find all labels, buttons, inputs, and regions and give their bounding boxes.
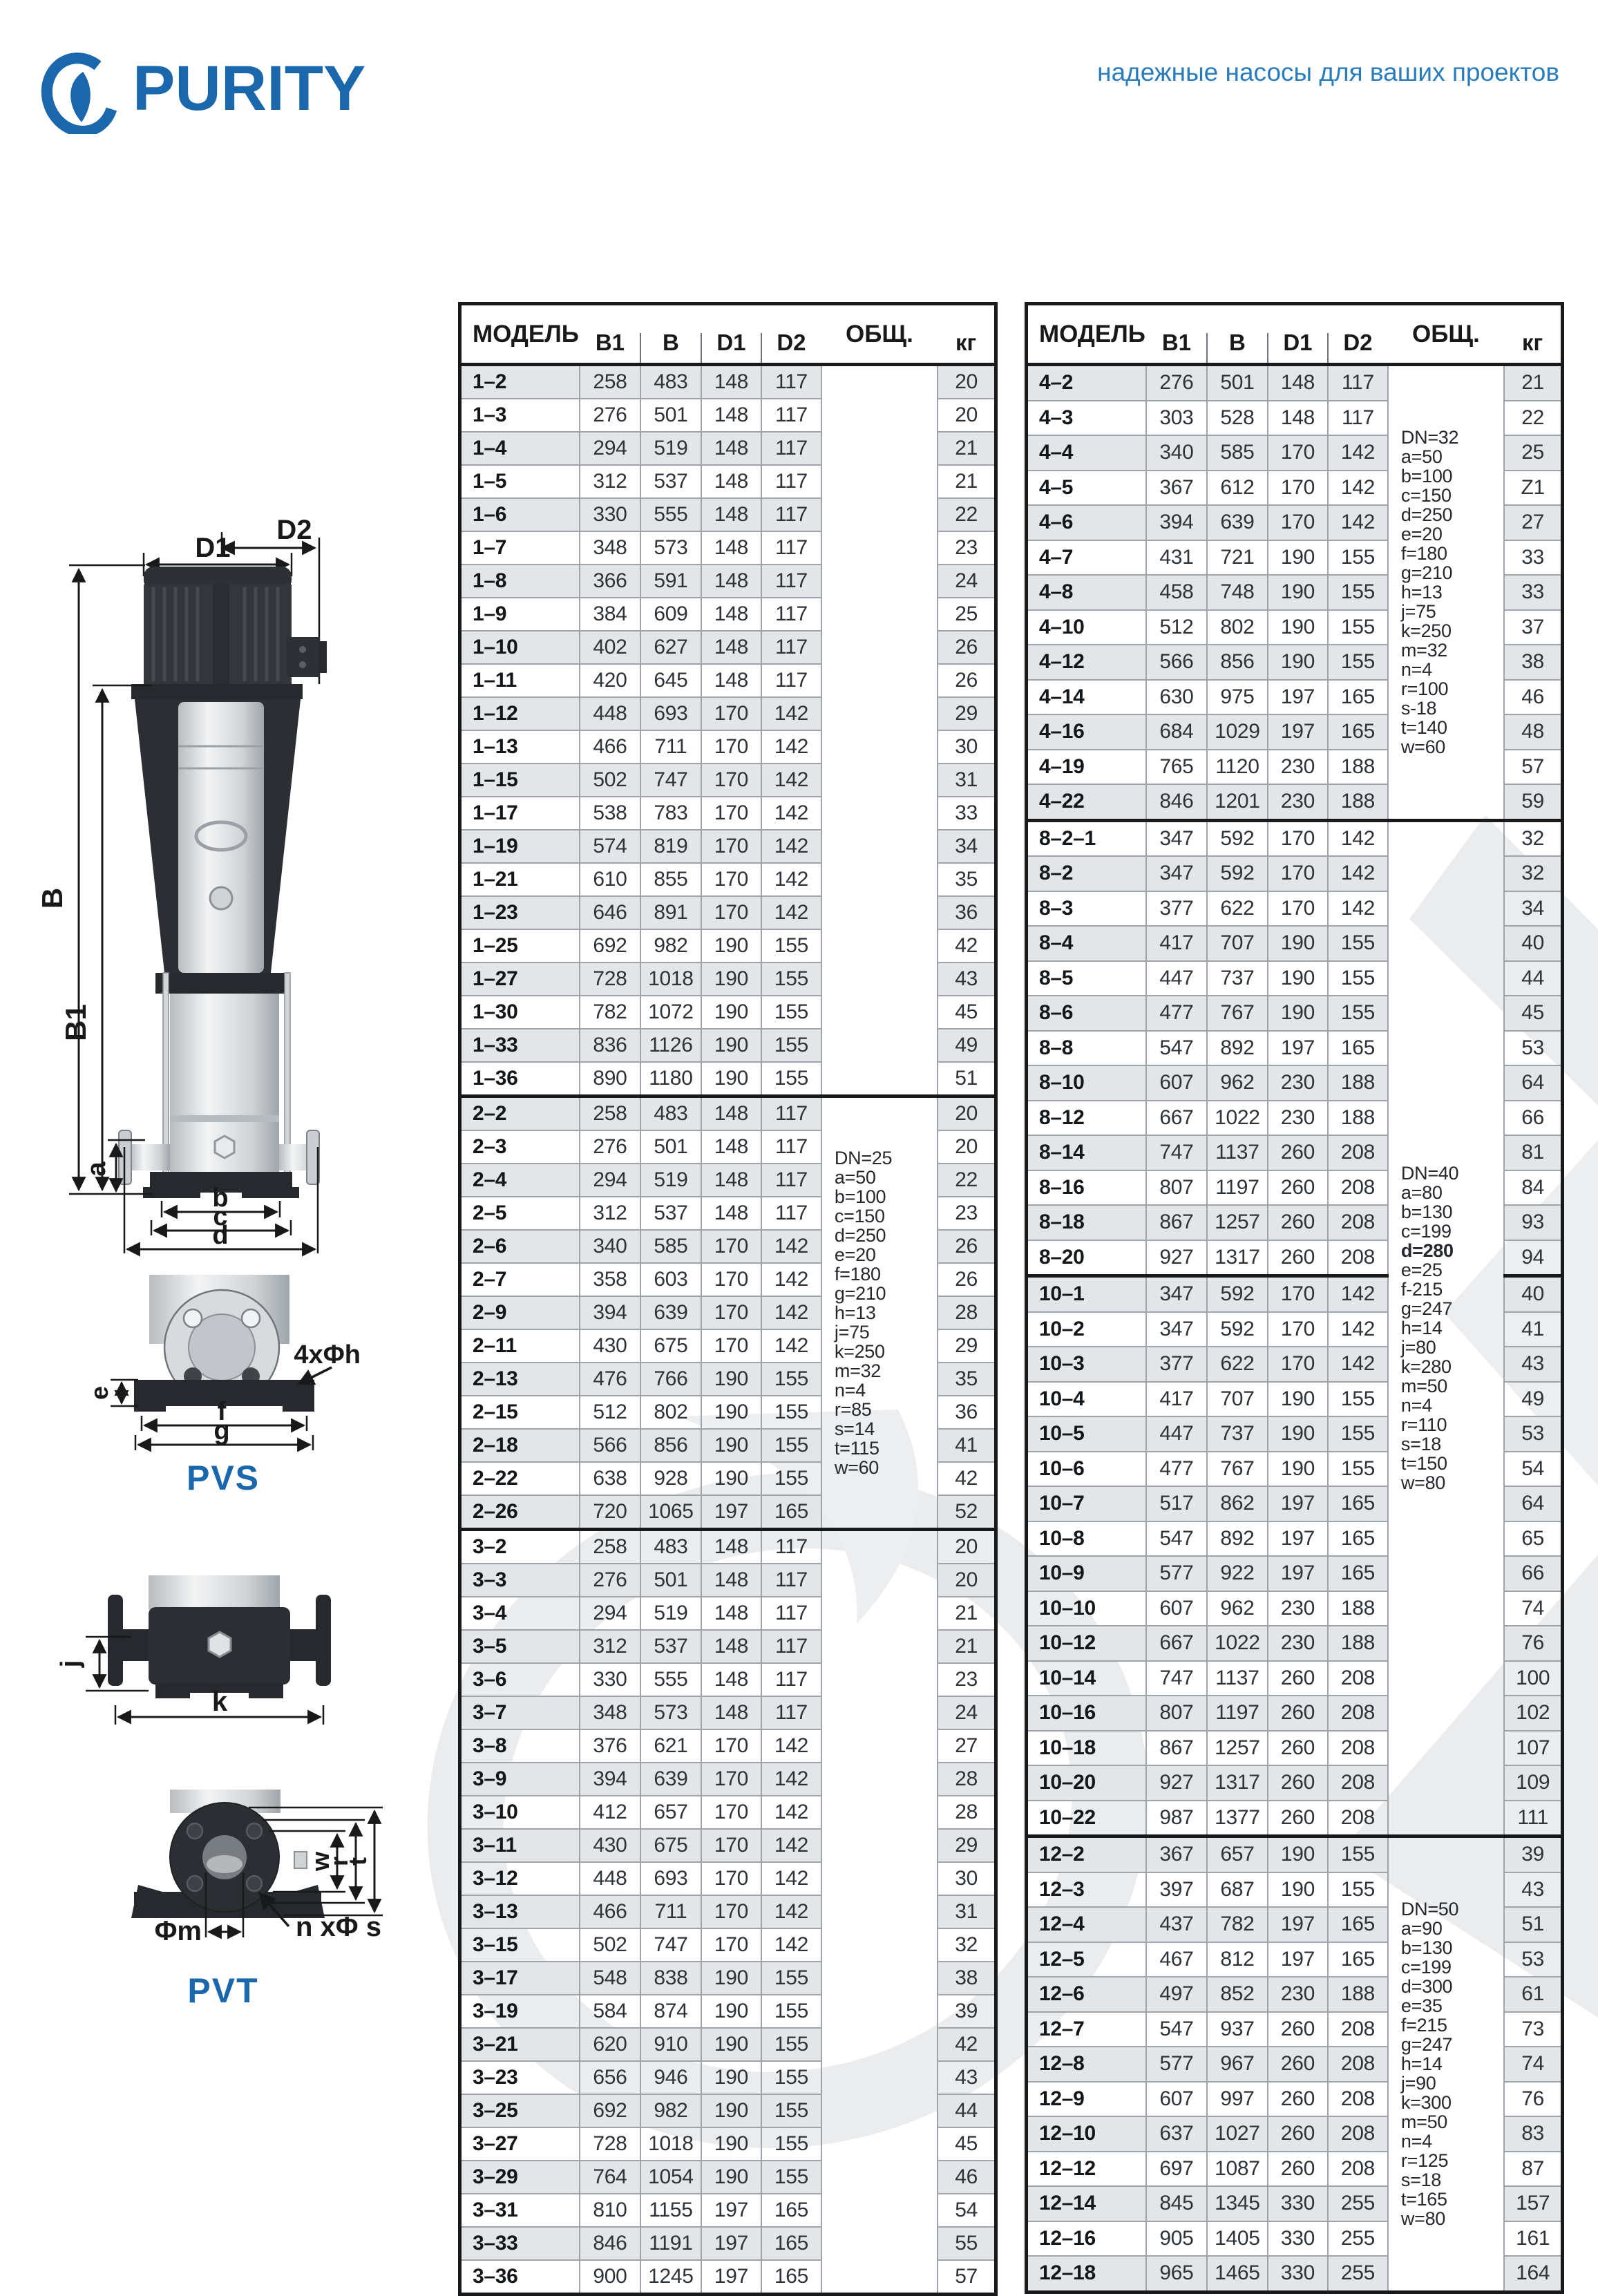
model-cell: 8–14: [1027, 1135, 1146, 1170]
weight-kg-cell: 21: [1504, 365, 1563, 401]
model-cell: 4–7: [1027, 540, 1146, 576]
dimension-cell: 155: [761, 2127, 821, 2161]
dimension-cell: 547: [1146, 1521, 1207, 1557]
dimension-cell: 142: [761, 1296, 821, 1329]
model-cell: 1–27: [460, 962, 580, 996]
weight-kg-cell: 23: [938, 531, 996, 564]
model-cell: 12–7: [1027, 2012, 1146, 2047]
dimension-cell: 170: [701, 763, 761, 797]
dimension-cell: 190: [701, 2161, 761, 2194]
weight-kg-cell: 42: [938, 1462, 996, 1495]
dimension-cell: 737: [1207, 1416, 1268, 1452]
dimension-cell: 190: [701, 1062, 761, 1097]
dn-dimensions-note-line: DN=40: [1401, 1164, 1503, 1183]
dimension-cell: 367: [1146, 471, 1207, 506]
weight-kg-cell: 64: [1504, 1065, 1563, 1101]
dimension-cell: 431: [1146, 540, 1207, 576]
dimension-cell: 466: [580, 1895, 640, 1928]
dn-dimensions-note-line: m=32: [835, 1361, 937, 1381]
dimension-cell: 856: [640, 1429, 701, 1462]
dimension-cell: 910: [640, 2028, 701, 2061]
dim-label-B1: B1: [59, 1004, 92, 1041]
dimension-cell: 852: [1207, 1977, 1268, 2012]
dimension-cell: 707: [1207, 926, 1268, 961]
dimension-cell: 573: [640, 531, 701, 564]
dn-dimensions-note-line: t=150: [1401, 1454, 1503, 1473]
dimension-cell: 148: [701, 1130, 761, 1164]
weight-kg-cell: 51: [1504, 1907, 1563, 1942]
dn-dimensions-note-cell: [821, 1530, 938, 2295]
dimension-cell: 190: [701, 962, 761, 996]
dimension-cell: 620: [580, 2028, 640, 2061]
model-cell: 2–22: [460, 1462, 580, 1495]
dimension-cell: 197: [1268, 1486, 1328, 1521]
dimension-cell: 190: [1268, 540, 1328, 576]
dimension-cell: 367: [1146, 1837, 1207, 1872]
dn-dimensions-note-line: e=20: [1401, 524, 1503, 544]
dimension-cell: 417: [1146, 926, 1207, 961]
dimension-cell: 208: [1328, 1661, 1388, 1696]
weight-kg-cell: 28: [938, 1296, 996, 1329]
dimension-cell: 982: [640, 929, 701, 962]
dn-dimensions-note-line: j=90: [1401, 2074, 1503, 2093]
dimension-cell: 117: [761, 498, 821, 531]
dimension-cell: 566: [1146, 645, 1207, 680]
dimension-cell: 394: [580, 1763, 640, 1796]
dn-dimensions-note-line: w=80: [1401, 1473, 1503, 1492]
dimension-cell: 867: [1146, 1205, 1207, 1240]
dimension-cell: 260: [1268, 2152, 1328, 2187]
model-cell: 1–21: [460, 863, 580, 896]
dimension-cell: 197: [1268, 714, 1328, 750]
dimension-cell: 585: [640, 1230, 701, 1263]
dimension-cell: 330: [580, 1663, 640, 1696]
weight-kg-cell: 20: [938, 399, 996, 432]
weight-kg-cell: 76: [1504, 2082, 1563, 2117]
dimension-cell: 188: [1328, 1101, 1388, 1136]
dimension-cell: 142: [761, 697, 821, 730]
dn-dimensions-note-line: w=60: [835, 1458, 937, 1477]
dimension-cell: 170: [701, 1230, 761, 1263]
dimension-cell: 170: [701, 730, 761, 763]
dimension-cell: 148: [701, 531, 761, 564]
weight-kg-cell: 54: [1504, 1452, 1563, 1487]
dimension-cell: 117: [761, 465, 821, 498]
model-cell: 10–5: [1027, 1416, 1146, 1452]
dimension-cell: 397: [1146, 1872, 1207, 1908]
dimension-cell: 1029: [1207, 714, 1268, 750]
dimension-cell: 165: [761, 2194, 821, 2227]
dimension-cell: 190: [701, 929, 761, 962]
dimension-cell: 170: [701, 1263, 761, 1296]
weight-kg-cell: 83: [1504, 2116, 1563, 2152]
dimension-cell: 188: [1328, 1591, 1388, 1626]
model-cell: 12–5: [1027, 1942, 1146, 1977]
model-cell: 10–1: [1027, 1276, 1146, 1312]
weight-kg-cell: 34: [1504, 891, 1563, 927]
dimension-cell: 170: [701, 1796, 761, 1829]
dn-dimensions-note-line: k=250: [1401, 621, 1503, 641]
dimension-cell: 347: [1146, 820, 1207, 856]
dimension-cell: 188: [1328, 784, 1388, 820]
dimension-cell: 987: [1146, 1801, 1207, 1837]
dimension-cell: 117: [761, 432, 821, 465]
dimension-cell: 190: [701, 1363, 761, 1396]
dimension-cell: 117: [761, 664, 821, 697]
dimension-cell: 376: [580, 1729, 640, 1763]
weight-kg-cell: 22: [1504, 401, 1563, 436]
dimension-cell: 142: [1328, 1276, 1388, 1312]
dimension-cell: 592: [1207, 856, 1268, 891]
weight-kg-cell: 57: [938, 2260, 996, 2295]
dimension-cell: 340: [1146, 435, 1207, 471]
dimension-cell: 230: [1268, 1626, 1328, 1661]
dimension-cell: 170: [1268, 1276, 1328, 1312]
dimension-cell: 190: [701, 2094, 761, 2127]
model-cell: 10–8: [1027, 1521, 1146, 1557]
dimension-cell: 142: [1328, 471, 1388, 506]
weight-kg-cell: 33: [938, 797, 996, 830]
model-cell: 3–23: [460, 2061, 580, 2094]
weight-kg-cell: 37: [1504, 610, 1563, 645]
dimension-cell: 1065: [640, 1495, 701, 1530]
dn-dimensions-note-line: t=165: [1401, 2190, 1503, 2209]
dimension-cell: 975: [1207, 680, 1268, 715]
dimension-cell: 190: [701, 1462, 761, 1495]
dimension-cell: 170: [1268, 505, 1328, 540]
dimension-cell: 483: [640, 365, 701, 399]
dimension-cell: 1201: [1207, 784, 1268, 820]
weight-kg-cell: 29: [938, 697, 996, 730]
dimension-cell: 348: [580, 1696, 640, 1729]
dn-dimensions-note-line: r=100: [1401, 679, 1503, 699]
model-cell: 1–12: [460, 697, 580, 730]
dimension-cell: 476: [580, 1363, 640, 1396]
dn-dimensions-note-line: a=90: [1401, 1919, 1503, 1938]
dimension-cell: 258: [580, 1097, 640, 1131]
weight-kg-cell: 36: [938, 896, 996, 929]
dim-label-B: B: [41, 888, 68, 909]
dn-dimensions-note-line: b=130: [1401, 1938, 1503, 1957]
weight-kg-cell: 26: [938, 631, 996, 664]
dimension-cell: 997: [1207, 2082, 1268, 2117]
dimension-cell: 946: [640, 2061, 701, 2094]
dimension-cell: 260: [1268, 1765, 1328, 1801]
dimension-cell: 208: [1328, 2116, 1388, 2152]
weight-kg-cell: 40: [1504, 1276, 1563, 1312]
dimension-cell: 230: [1268, 1065, 1328, 1101]
dimension-cell: 982: [640, 2094, 701, 2127]
model-cell: 2–7: [460, 1263, 580, 1296]
dimension-cell: 684: [1146, 714, 1207, 750]
dimension-cell: 466: [580, 730, 640, 763]
dimension-cell: 165: [761, 2227, 821, 2260]
model-cell: 1–2: [460, 365, 580, 399]
table-row: 4–2276501148117DN=32a=50b=100c=150d=250e…: [1027, 365, 1563, 401]
weight-kg-cell: 36: [938, 1396, 996, 1429]
dimension-cell: 607: [1146, 1591, 1207, 1626]
dimension-cell: 1018: [640, 962, 701, 996]
dimension-cell: 867: [1146, 1731, 1207, 1766]
weight-kg-cell: 41: [1504, 1312, 1563, 1347]
dimensions-table-left: МОДЕЛЬ B1 B D1 D2 ОБЩ. кг 1–225848314811…: [458, 302, 998, 2296]
model-cell: 12–14: [1027, 2186, 1146, 2221]
model-cell: 2–5: [460, 1197, 580, 1230]
model-cell: 4–6: [1027, 505, 1146, 540]
weight-kg-cell: 29: [938, 1829, 996, 1862]
dn-dimensions-note-line: a=50: [835, 1168, 937, 1187]
model-cell: 2–18: [460, 1429, 580, 1462]
weight-kg-cell: 20: [938, 1130, 996, 1164]
dimension-cell: 348: [580, 531, 640, 564]
brand-name: PURITY: [133, 53, 365, 124]
model-cell: 12–8: [1027, 2047, 1146, 2082]
dimension-cell: 501: [1207, 365, 1268, 401]
dimension-cell: 276: [580, 399, 640, 432]
dimension-cell: 927: [1146, 1240, 1207, 1276]
weight-kg-cell: 161: [1504, 2221, 1563, 2257]
dimension-cell: 1137: [1207, 1135, 1268, 1170]
weight-kg-cell: 44: [938, 2094, 996, 2127]
dimension-cell: 260: [1268, 1240, 1328, 1276]
dimension-cell: 1072: [640, 996, 701, 1029]
dimension-cell: 148: [701, 498, 761, 531]
dimension-cell: 230: [1268, 750, 1328, 785]
dn-dimensions-note-line: d=250: [835, 1226, 937, 1245]
dimension-cell: 711: [640, 730, 701, 763]
dimension-cell: 155: [1328, 575, 1388, 610]
model-cell: 10–9: [1027, 1556, 1146, 1591]
dimension-cell: 347: [1146, 1312, 1207, 1347]
dimension-cell: 810: [580, 2194, 640, 2227]
dimension-cell: 155: [1328, 926, 1388, 961]
dn-dimensions-note-line: f-215: [1401, 1280, 1503, 1299]
model-cell: 4–12: [1027, 645, 1146, 680]
dimension-cell: 512: [1146, 610, 1207, 645]
dn-dimensions-note-line: j=75: [1401, 602, 1503, 621]
weight-kg-cell: 21: [938, 1597, 996, 1630]
dimension-cell: 846: [580, 2227, 640, 2260]
weight-kg-cell: 38: [1504, 645, 1563, 680]
dn-dimensions-note-line: s=18: [1401, 2170, 1503, 2190]
dimension-cell: 170: [701, 797, 761, 830]
dimension-cell: 610: [580, 863, 640, 896]
weight-kg-cell: 100: [1504, 1661, 1563, 1696]
dimension-cell: 384: [580, 598, 640, 631]
dn-dimensions-note-cell: DN=32a=50b=100c=150d=250e=20f=180g=210h=…: [1388, 365, 1504, 821]
weight-kg-cell: 35: [938, 1363, 996, 1396]
weight-kg-cell: 20: [938, 1530, 996, 1564]
dn-dimensions-note-line: c=150: [835, 1206, 937, 1226]
weight-kg-cell: 43: [938, 2061, 996, 2094]
weight-kg-cell: 49: [1504, 1382, 1563, 1417]
dimension-cell: 165: [1328, 714, 1388, 750]
dimension-cell: 782: [580, 996, 640, 1029]
dimension-cell: 190: [1268, 1872, 1328, 1908]
dn-dimensions-note-line: n=4: [1401, 660, 1503, 679]
dimension-cell: 430: [580, 1829, 640, 1862]
dimension-cell: 142: [1328, 435, 1388, 471]
weight-kg-cell: 57: [1504, 750, 1563, 785]
dimension-cell: 117: [761, 631, 821, 664]
dimension-cell: 155: [1328, 1837, 1388, 1872]
weight-kg-cell: 157: [1504, 2186, 1563, 2221]
dimension-cell: 891: [640, 896, 701, 929]
dimension-cell: 165: [1328, 1556, 1388, 1591]
col-header-obsh: ОБЩ.: [821, 304, 938, 365]
col-header-kg: кг: [938, 304, 996, 365]
dimension-cell: 622: [1207, 891, 1268, 927]
dimension-cell: 230: [1268, 1591, 1328, 1626]
dimension-cell: 260: [1268, 1696, 1328, 1731]
dimension-cell: 155: [1328, 1452, 1388, 1487]
dimension-cell: 347: [1146, 1276, 1207, 1312]
dimension-cell: 501: [640, 399, 701, 432]
dimension-cell: 630: [1146, 680, 1207, 715]
weight-kg-cell: 32: [1504, 820, 1563, 856]
weight-kg-cell: 65: [1504, 1521, 1563, 1557]
dimension-cell: 170: [701, 830, 761, 863]
dimension-cell: 170: [701, 863, 761, 896]
dimension-cell: 155: [761, 1363, 821, 1396]
dimension-cell: 170: [701, 697, 761, 730]
weight-kg-cell: 51: [938, 1062, 996, 1097]
model-cell: 3–15: [460, 1928, 580, 1962]
dimension-cell: 1180: [640, 1062, 701, 1097]
dimension-cell: 260: [1268, 1205, 1328, 1240]
dimension-cell: 155: [1328, 1416, 1388, 1452]
weight-kg-cell: 54: [938, 2194, 996, 2227]
dimension-cell: 170: [701, 1895, 761, 1928]
dimension-cell: 142: [1328, 505, 1388, 540]
dimension-cell: 165: [1328, 1486, 1388, 1521]
weight-kg-cell: 21: [938, 432, 996, 465]
dimension-cell: 519: [640, 1597, 701, 1630]
weight-kg-cell: 66: [1504, 1556, 1563, 1591]
dimension-cell: 693: [640, 697, 701, 730]
dimension-cell: 1317: [1207, 1765, 1268, 1801]
dimension-cell: 155: [761, 1062, 821, 1097]
dn-dimensions-note-line: e=25: [1401, 1260, 1503, 1280]
model-cell: 3–29: [460, 2161, 580, 2194]
dimension-cell: 922: [1207, 1556, 1268, 1591]
model-cell: 8–4: [1027, 926, 1146, 961]
dimension-cell: 1317: [1207, 1240, 1268, 1276]
weight-kg-cell: 87: [1504, 2152, 1563, 2187]
model-cell: 1–5: [460, 465, 580, 498]
dimension-cell: 621: [640, 1729, 701, 1763]
dn-dimensions-note-line: g=247: [1401, 1299, 1503, 1318]
model-cell: 1–8: [460, 564, 580, 598]
model-cell: 1–6: [460, 498, 580, 531]
dimension-cell: 155: [1328, 1382, 1388, 1417]
dimension-cell: 190: [1268, 1416, 1328, 1452]
model-cell: 3–13: [460, 1895, 580, 1928]
model-cell: 2–3: [460, 1130, 580, 1164]
weight-kg-cell: 20: [938, 1564, 996, 1597]
dimension-cell: 230: [1268, 1977, 1328, 2012]
weight-kg-cell: 42: [938, 2028, 996, 2061]
dimension-cell: 197: [701, 2194, 761, 2227]
dimension-cell: 155: [1328, 961, 1388, 996]
dimension-cell: 537: [640, 1197, 701, 1230]
weight-kg-cell: 22: [938, 1164, 996, 1197]
dimension-cell: 747: [640, 763, 701, 797]
dn-dimensions-note-line: n=4: [835, 1381, 937, 1400]
dimension-cell: 519: [640, 432, 701, 465]
weight-kg-cell: 44: [1504, 961, 1563, 996]
dimension-cell: 303: [1146, 401, 1207, 436]
dimension-cell: 1197: [1207, 1170, 1268, 1206]
weight-kg-cell: 26: [938, 1230, 996, 1263]
dimension-cell: 1018: [640, 2127, 701, 2161]
dimension-cell: 117: [761, 365, 821, 399]
dim-label-w: w: [306, 1851, 334, 1872]
weight-kg-cell: 111: [1504, 1801, 1563, 1837]
dimension-cell: 142: [761, 1263, 821, 1296]
dimension-cell: 965: [1146, 2256, 1207, 2292]
dn-dimensions-note-line: r=110: [1401, 1415, 1503, 1434]
model-cell: 8–2–1: [1027, 820, 1146, 856]
weight-kg-cell: Z1: [1504, 471, 1563, 506]
dimension-cell: 639: [1207, 505, 1268, 540]
dimension-cell: 165: [1328, 1521, 1388, 1557]
dn-dimensions-note-line: DN=50: [1401, 1899, 1503, 1919]
dimension-cell: 622: [1207, 1347, 1268, 1382]
dn-dimensions-note-cell: DN=50a=90b=130c=199d=300e=35f=215g=247h=…: [1388, 1837, 1504, 2293]
dimension-cell: 155: [761, 2061, 821, 2094]
pvt-series-label: PVT: [137, 1971, 310, 2011]
col-header-model: МОДЕЛЬ: [460, 304, 580, 365]
dimension-cell: 537: [640, 1630, 701, 1663]
dimension-cell: 1197: [1207, 1696, 1268, 1731]
model-cell: 12–10: [1027, 2116, 1146, 2152]
dimension-cell: 687: [1207, 1872, 1268, 1908]
model-cell: 12–3: [1027, 1872, 1146, 1908]
dimension-cell: 517: [1146, 1486, 1207, 1521]
weight-kg-cell: 64: [1504, 1486, 1563, 1521]
catalog-page: { "header": { "logo_text": "PURITY", "ta…: [0, 0, 1598, 2239]
weight-kg-cell: 74: [1504, 2047, 1563, 2082]
dimension-cell: 255: [1328, 2186, 1388, 2221]
model-cell: 8–3: [1027, 891, 1146, 927]
dn-dimensions-note-line: n=4: [1401, 2132, 1503, 2151]
dimension-cell: 208: [1328, 2082, 1388, 2117]
dimension-cell: 574: [580, 830, 640, 863]
dimension-cell: 548: [580, 1962, 640, 1995]
weight-kg-cell: 39: [1504, 1837, 1563, 1872]
model-cell: 3–25: [460, 2094, 580, 2127]
model-cell: 4–19: [1027, 750, 1146, 785]
model-cell: 4–4: [1027, 435, 1146, 471]
dimension-cell: 197: [1268, 1521, 1328, 1557]
dimension-cell: 155: [1328, 645, 1388, 680]
dimensions-table-right: МОДЕЛЬ B1 B D1 D2 ОБЩ. кг 4–227650114811…: [1025, 302, 1564, 2294]
dimension-cell: 1120: [1207, 750, 1268, 785]
dimension-cell: 197: [1268, 1031, 1328, 1066]
dimension-cell: 592: [1207, 820, 1268, 856]
dimension-cell: 767: [1207, 996, 1268, 1031]
dimension-cell: 627: [640, 631, 701, 664]
dimension-cell: 142: [1328, 1347, 1388, 1382]
dimension-cell: 117: [761, 1564, 821, 1597]
dimension-cell: 142: [761, 863, 821, 896]
dimension-cell: 190: [701, 1962, 761, 1995]
dimension-cell: 846: [1146, 784, 1207, 820]
dimension-cell: 142: [761, 1895, 821, 1928]
dimension-cell: 190: [701, 1396, 761, 1429]
dimension-cell: 155: [761, 929, 821, 962]
